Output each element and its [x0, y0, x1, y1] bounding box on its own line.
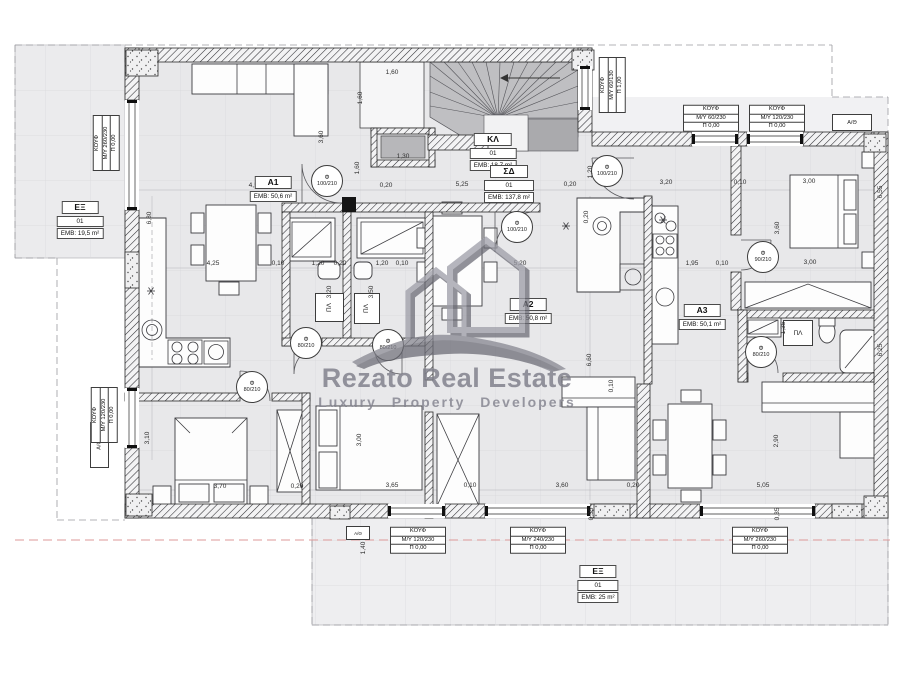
door-tag-d2: Φ100/210 [591, 155, 623, 187]
door-tag-d7: Φ90/210 [747, 241, 779, 273]
door-tag-d1: Φ100/210 [311, 165, 343, 197]
dimension-label: 3,00 [804, 260, 817, 267]
opening-tag-k7: ΚΟΥΦ M/Y 240/230 Π 0,00 [510, 527, 566, 554]
room-unit: 01 [470, 148, 517, 159]
dimension-label: 0,10 [716, 261, 729, 268]
opening-tag-k4: ΚΟΥΦ M/Y 60/230 Π 0,00 [683, 105, 739, 132]
dimension-label: 1,95 [686, 261, 699, 268]
dimension-label: 5,20 [514, 261, 527, 268]
dimension-label: 6,80 [147, 212, 154, 225]
dimension-label: 3,00 [357, 434, 364, 447]
room-unit: 01 [57, 216, 104, 227]
dimension-label: 0,10 [734, 180, 747, 187]
heatpump-tag: A/Θ [346, 526, 370, 540]
dimension-label: 0,10 [464, 483, 477, 490]
dimension-label: 6,60 [587, 354, 594, 367]
room-label-a3: A3 EMB: 50,1 m² [679, 300, 726, 330]
opening-tag-k6: ΚΟΥΦ M/Y 120/230 Π 0,00 [390, 527, 446, 554]
room-label-a1: A1 EMB: 50,6 m² [250, 172, 297, 202]
room-unit: 01 [484, 180, 534, 191]
opening-tag-k5: ΚΟΥΦ M/Y 120/230 Π 0,00 [749, 105, 805, 132]
dimension-label: 1,35 [781, 322, 788, 335]
dimension-label: 3,10 [145, 432, 152, 445]
room-area: EMB: 19,5 m² [57, 228, 104, 239]
room-name: A1 [255, 176, 292, 189]
washer-tag: ΠΛ [783, 320, 813, 346]
dimension-label: 0,20 [380, 183, 393, 190]
dimension-label: 3,60 [556, 483, 569, 490]
dimension-label: 1,20 [312, 261, 325, 268]
room-name: A3 [684, 304, 721, 317]
room-area: EMB: 50,1 m² [679, 319, 726, 330]
dimension-label: 1,40 [361, 542, 368, 555]
dimension-label: 1,30 [397, 154, 410, 161]
dimension-label: 1,20 [588, 166, 595, 179]
room-area: EMB: 25 m² [577, 592, 618, 603]
dimension-label: 0,35 [589, 508, 596, 521]
opening-tag-k8: ΚΟΥΦ M/Y 260/230 Π 0,00 [732, 527, 788, 554]
dimension-label: 3,20 [660, 180, 673, 187]
dimension-label: 1,60 [358, 92, 365, 105]
opening-tag-k2: ΚΟΥΦ M/Y 120/230 Π 0,00 [91, 387, 118, 443]
door-tag-d5: Φ80/210 [372, 329, 404, 361]
room-label-sd: ΣΔ 01 EMB: 137,8 m² [484, 161, 534, 203]
dimension-label: 4,25 [207, 261, 220, 268]
door-tag-d3: Φ100/210 [501, 211, 533, 243]
dimension-label: 3,60 [319, 131, 326, 144]
dimension-label: 6,55 [878, 186, 885, 199]
dimension-label: 3,20 [327, 286, 334, 299]
room-name: EΞ [579, 565, 616, 578]
dimension-label: 0,10 [396, 261, 409, 268]
room-name: EΞ [61, 201, 98, 214]
dimension-label: 3,60 [775, 222, 782, 235]
opening-tag-k1: ΚΟΥΦ M/Y 260/230 Π 0,00 [93, 115, 120, 171]
door-tag-d6: Φ80/210 [236, 371, 268, 403]
dimension-label: 0,20 [584, 211, 591, 224]
dimension-label: 3,65 [386, 483, 399, 490]
dimension-label: 2,90 [774, 435, 781, 448]
room-label-ex-bottom: EΞ 01 EMB: 25 m² [577, 561, 618, 603]
heatpump-tag: A/Θ [832, 114, 872, 131]
dimension-label: 3,70 [214, 484, 227, 491]
opening-tag-k3: ΚΟΥΦ M/Y 60/130 Π 1,00 [599, 57, 626, 113]
floor-plan-canvas: EΞ 01 EMB: 19,5 m² A1 EMB: 50,6 m² ΚΛ 01… [0, 0, 900, 675]
room-name: A2 [510, 298, 547, 311]
dimension-label: 5,25 [456, 182, 469, 189]
dimension-label: 5,05 [757, 483, 770, 490]
dimension-label: 0,20 [334, 261, 347, 268]
dimension-label: 1,20 [376, 261, 389, 268]
dimension-label: 0,20 [564, 182, 577, 189]
elevator [360, 62, 435, 167]
dimension-label: 0,20 [627, 483, 640, 490]
room-label-a2: A2 EMB: 50,8 m² [505, 294, 552, 324]
room-name: ΣΔ [490, 165, 527, 178]
room-unit: 01 [577, 580, 618, 591]
dimension-label: 6,25 [878, 344, 885, 357]
room-area: EMB: 137,8 m² [484, 192, 534, 203]
room-area: EMB: 50,6 m² [250, 191, 297, 202]
dimension-label: 3,50 [369, 286, 376, 299]
door-tag-d4: Φ80/210 [290, 327, 322, 359]
dimension-label: 0,10 [609, 380, 616, 393]
dimension-label: 0,10 [272, 261, 285, 268]
dimension-label: 0,20 [291, 484, 304, 491]
room-name: ΚΛ [474, 133, 512, 146]
door-tag-d8: Φ80/210 [745, 336, 777, 368]
dimension-label: 1,60 [355, 162, 362, 175]
room-area: EMB: 50,8 m² [505, 313, 552, 324]
dimension-label: 0,35 [775, 508, 782, 521]
dimension-label: 3,00 [803, 179, 816, 186]
dimension-label: 1,60 [386, 70, 399, 77]
room-label-ex-left: EΞ 01 EMB: 19,5 m² [57, 197, 104, 239]
